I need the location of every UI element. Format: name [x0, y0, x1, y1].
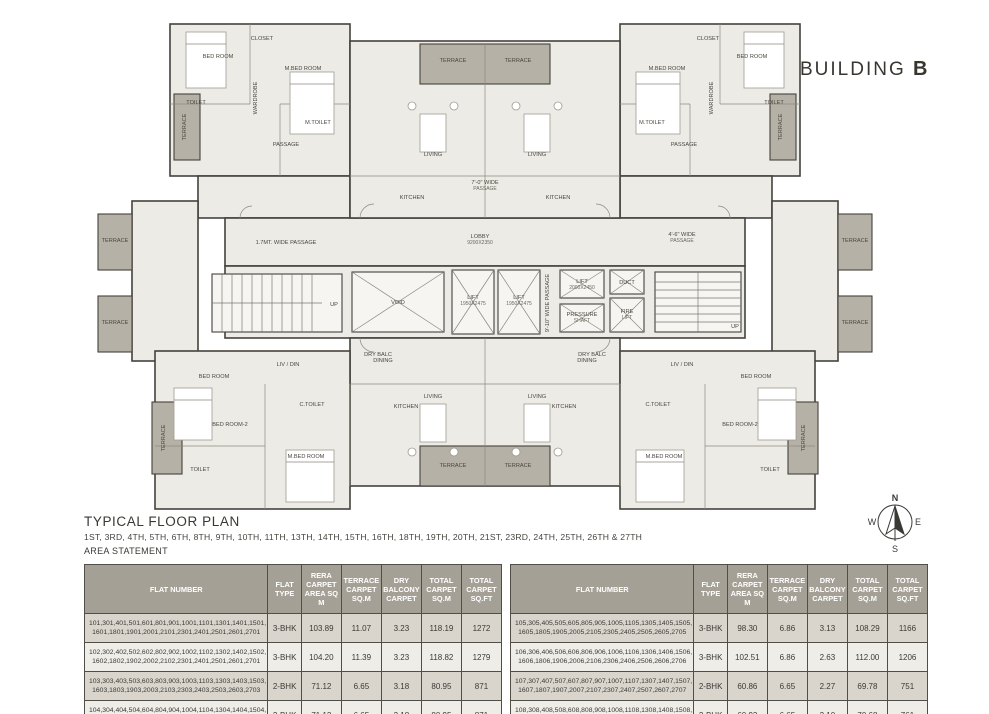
room-label: SHAFT: [574, 318, 590, 324]
room-label: TERRACE: [102, 238, 129, 244]
total-sqm-cell: 80.95: [421, 672, 461, 701]
staircase-left: [212, 274, 342, 332]
room-label: PASSAGE: [670, 238, 694, 244]
total-sqm-cell: 69.78: [847, 672, 887, 701]
room-label: BED ROOM-2: [212, 422, 247, 428]
room-label: M.TOILET: [639, 120, 665, 126]
flat-number-cell: 105,305,405,505,605,805,905,1005,1105,13…: [511, 614, 694, 643]
floor-plan: LOBBY9200X23501.7MT. WIDE PASSAGE4'-6" W…: [90, 6, 880, 514]
room-label: BED ROOM: [737, 54, 768, 60]
total-sqft-cell: 751: [887, 672, 927, 701]
room-label: PASSAGE: [671, 142, 698, 148]
terrace-carpet-cell: 6.65: [341, 672, 381, 701]
total-sqm-cell: 80.95: [421, 701, 461, 714]
floors-list: 1ST, 3RD, 4TH, 5TH, 6TH, 8TH, 9TH, 10TH,…: [84, 532, 642, 542]
table-header-row: FLAT NUMBERFLAT TYPERERA CARPET AREA SQ …: [85, 565, 502, 614]
flat-number-cell: 104,304,404,504,604,804,904,1004,1104,13…: [85, 701, 268, 714]
room-label: TERRACE: [440, 58, 467, 64]
column-header: DRY BALCONY CARPET: [381, 565, 421, 614]
room-label: KITCHEN: [394, 404, 419, 410]
flat-number-cell: 106,306,406,506,606,806,906,1006,1106,13…: [511, 643, 694, 672]
flat-number-cell: 108,308,408,508,608,808,908,1008,1108,13…: [511, 701, 694, 714]
column-header: TERRACE CARPET SQ.M: [341, 565, 381, 614]
room-label: LIVING: [528, 394, 546, 400]
total-sqft-cell: 871: [461, 672, 501, 701]
rera-carpet-cell: 98.30: [727, 614, 767, 643]
column-header: FLAT NUMBER: [511, 565, 694, 614]
room-label: PASSAGE: [473, 186, 497, 192]
column-header: FLAT TYPE: [268, 565, 301, 614]
room-label: DINING: [577, 358, 597, 364]
column-header: TOTAL CARPET SQ.FT: [461, 565, 501, 614]
column-header: TOTAL CARPET SQ.M: [421, 565, 461, 614]
room-label: M.BED ROOM: [285, 66, 322, 72]
room-label: LIFT: [622, 315, 632, 321]
room-label: TERRACE: [102, 320, 129, 326]
table-row: 107,307,407,507,607,807,907,1007,1107,13…: [511, 672, 928, 701]
compass-south-label: S: [892, 544, 898, 554]
table-row: 103,303,403,503,603,803,903,1003,1103,13…: [85, 672, 502, 701]
room-label: TERRACE: [440, 463, 467, 469]
column-header: TOTAL CARPET SQ.FT: [887, 565, 927, 614]
room-label: BED ROOM-2: [722, 422, 757, 428]
column-header: RERA CARPET AREA SQ M: [727, 565, 767, 614]
table-row: 101,301,401,501,601,801,901,1001,1101,13…: [85, 614, 502, 643]
flat-number-cell: 101,301,401,501,601,801,901,1001,1101,13…: [85, 614, 268, 643]
table-row: 104,304,404,504,604,804,904,1004,1104,13…: [85, 701, 502, 714]
total-sqft-cell: 1272: [461, 614, 501, 643]
room-label: KITCHEN: [400, 195, 425, 201]
room-label: TOILET: [760, 467, 780, 473]
room-label: DINING: [373, 358, 393, 364]
dry-balcony-cell: 3.13: [807, 614, 847, 643]
room-label: DRY BALC: [364, 352, 392, 358]
rera-carpet-cell: 104.20: [301, 643, 341, 672]
total-sqm-cell: 112.00: [847, 643, 887, 672]
room-label: TERRACE: [505, 463, 532, 469]
compass-east-label: E: [915, 517, 921, 527]
room-label: 9'-10" WIDE PASSAGE: [545, 274, 551, 333]
terrace-carpet-cell: 11.39: [341, 643, 381, 672]
staircase-right: [655, 272, 741, 332]
room-label: TOILET: [764, 100, 784, 106]
room-label: UP: [731, 324, 739, 330]
compass-west-label: W: [868, 517, 877, 527]
room-label: LIVING: [528, 152, 546, 158]
rera-carpet-cell: 71.12: [301, 701, 341, 714]
total-sqm-cell: 70.68: [847, 701, 887, 714]
dry-balcony-cell: 3.18: [381, 701, 421, 714]
flat-type-cell: 3-BHK: [268, 614, 301, 643]
area-table-right: FLAT NUMBERFLAT TYPERERA CARPET AREA SQ …: [510, 564, 928, 714]
room-label: TERRACE: [778, 113, 784, 140]
room-label: 1950X2475: [460, 301, 486, 307]
total-sqm-cell: 108.29: [847, 614, 887, 643]
room-label: LIVING: [424, 394, 442, 400]
room-label: BED ROOM: [741, 374, 772, 380]
room-label: 1950X2475: [506, 301, 532, 307]
room-label: 2000X2450: [569, 285, 595, 291]
total-sqm-cell: 118.19: [421, 614, 461, 643]
total-sqft-cell: 761: [887, 701, 927, 714]
wing-left-upper: [198, 176, 350, 218]
room-label: C.TOILET: [299, 402, 325, 408]
room-label: TOILET: [186, 100, 206, 106]
dry-balcony-cell: 3.23: [381, 643, 421, 672]
column-header: FLAT TYPE: [694, 565, 727, 614]
room-label: DUCT: [619, 280, 635, 286]
flat-number-cell: 102,302,402,502,602,802,902,1002,1102,13…: [85, 643, 268, 672]
building-title-letter: B: [913, 58, 929, 80]
room-label: UP: [330, 302, 338, 308]
total-sqft-cell: 1166: [887, 614, 927, 643]
room-label: TERRACE: [842, 320, 869, 326]
wing-left-mid: [132, 201, 198, 361]
column-header: TOTAL CARPET SQ.M: [847, 565, 887, 614]
room-label: TERRACE: [505, 58, 532, 64]
room-label: TERRACE: [161, 424, 167, 451]
wing-right-mid: [772, 201, 838, 361]
area-statement-label: AREA STATEMENT: [84, 546, 168, 556]
room-label: PASSAGE: [273, 142, 300, 148]
room-label: BED ROOM: [199, 374, 230, 380]
column-header: FLAT NUMBER: [85, 565, 268, 614]
flat-type-cell: 2-BHK: [694, 672, 727, 701]
flat-number-cell: 103,303,403,503,603,803,903,1003,1103,13…: [85, 672, 268, 701]
floor-plan-sheet: { "building_title": {"prefix": "BUILDING…: [0, 0, 989, 714]
room-label: KITCHEN: [552, 404, 577, 410]
room-label: 9200X2350: [467, 240, 493, 246]
rera-carpet-cell: 60.93: [727, 701, 767, 714]
room-label: M.TOILET: [305, 120, 331, 126]
flat-type-cell: 2-BHK: [268, 701, 301, 714]
flat-type-cell: 2-BHK: [694, 701, 727, 714]
room-label: KITCHEN: [546, 195, 571, 201]
room-label: LIVING: [424, 152, 442, 158]
room-label: TERRACE: [182, 113, 188, 140]
area-table-left: FLAT NUMBERFLAT TYPERERA CARPET AREA SQ …: [84, 564, 502, 714]
room-label: M.BED ROOM: [288, 454, 325, 460]
terrace-carpet-cell: 6.65: [767, 701, 807, 714]
room-label: WARDROBE: [709, 81, 715, 114]
flat-type-cell: 2-BHK: [268, 672, 301, 701]
compass-north-label: N: [892, 493, 899, 503]
rera-carpet-cell: 102.51: [727, 643, 767, 672]
room-label: DRY BALC: [578, 352, 606, 358]
building-title: BUILDING B: [800, 58, 929, 81]
dry-balcony-cell: 3.10: [807, 701, 847, 714]
terrace-carpet-cell: 11.07: [341, 614, 381, 643]
column-header: RERA CARPET AREA SQ M: [301, 565, 341, 614]
room-label: 1.7MT. WIDE PASSAGE: [256, 240, 317, 246]
dry-balcony-cell: 3.18: [381, 672, 421, 701]
table-row: 106,306,406,506,606,806,906,1006,1106,13…: [511, 643, 928, 672]
total-sqft-cell: 871: [461, 701, 501, 714]
table-row: 108,308,408,508,608,808,908,1008,1108,13…: [511, 701, 928, 714]
column-header: DRY BALCONY CARPET: [807, 565, 847, 614]
room-label: TERRACE: [842, 238, 869, 244]
rera-carpet-cell: 71.12: [301, 672, 341, 701]
dry-balcony-cell: 3.23: [381, 614, 421, 643]
flat-type-cell: 3-BHK: [694, 614, 727, 643]
room-label: TERRACE: [801, 424, 807, 451]
wing-right-upper: [620, 176, 772, 218]
terrace-carpet-cell: 6.86: [767, 614, 807, 643]
room-label: TOILET: [190, 467, 210, 473]
plan-title: TYPICAL FLOOR PLAN: [84, 514, 240, 529]
terrace-carpet-cell: 6.65: [767, 672, 807, 701]
room-label: LIV / DIN: [277, 362, 300, 368]
terrace-carpet-cell: 6.65: [341, 701, 381, 714]
building-title-prefix: BUILDING: [800, 59, 906, 80]
flat-number-cell: 107,307,407,507,607,807,907,1007,1107,13…: [511, 672, 694, 701]
room-label: C.TOILET: [645, 402, 671, 408]
table-row: 102,302,402,502,602,802,902,1002,1102,13…: [85, 643, 502, 672]
terrace-carpet-cell: 6.86: [767, 643, 807, 672]
rera-carpet-cell: 60.86: [727, 672, 767, 701]
room-label: CLOSET: [251, 36, 274, 42]
room-label: M.BED ROOM: [646, 454, 683, 460]
room-label: WARDROBE: [253, 81, 259, 114]
table-row: 105,305,405,505,605,805,905,1005,1105,13…: [511, 614, 928, 643]
flat-type-cell: 3-BHK: [268, 643, 301, 672]
flat-type-cell: 3-BHK: [694, 643, 727, 672]
total-sqm-cell: 118.82: [421, 643, 461, 672]
room-label: CLOSET: [697, 36, 720, 42]
dry-balcony-cell: 2.63: [807, 643, 847, 672]
rera-carpet-cell: 103.89: [301, 614, 341, 643]
total-sqft-cell: 1206: [887, 643, 927, 672]
room-label: BED ROOM: [203, 54, 234, 60]
total-sqft-cell: 1279: [461, 643, 501, 672]
room-label: VOID: [391, 300, 405, 306]
room-label: LIV / DIN: [671, 362, 694, 368]
table-header-row: FLAT NUMBERFLAT TYPERERA CARPET AREA SQ …: [511, 565, 928, 614]
column-header: TERRACE CARPET SQ.M: [767, 565, 807, 614]
dry-balcony-cell: 2.27: [807, 672, 847, 701]
compass-icon: N W E S: [855, 478, 935, 560]
room-label: M.BED ROOM: [649, 66, 686, 72]
